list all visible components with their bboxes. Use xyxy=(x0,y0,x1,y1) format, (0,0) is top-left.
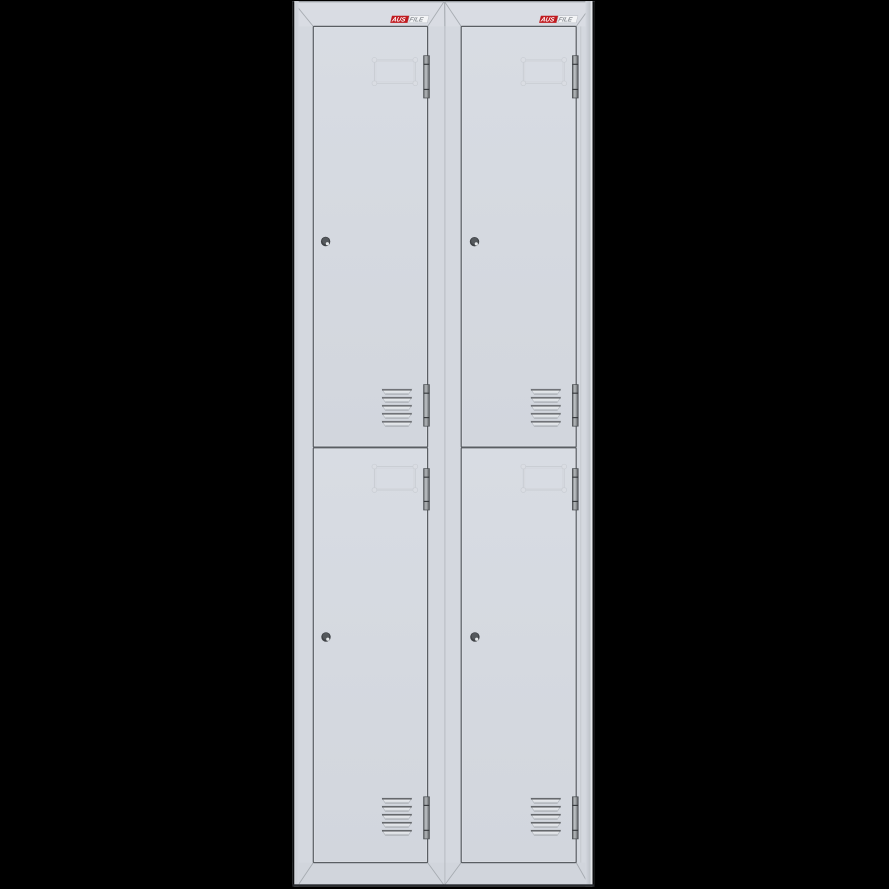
svg-text:AUS: AUS xyxy=(539,17,556,24)
svg-text:FILE: FILE xyxy=(409,17,425,24)
svg-text:FILE: FILE xyxy=(557,17,573,24)
svg-text:AUS: AUS xyxy=(390,17,407,24)
